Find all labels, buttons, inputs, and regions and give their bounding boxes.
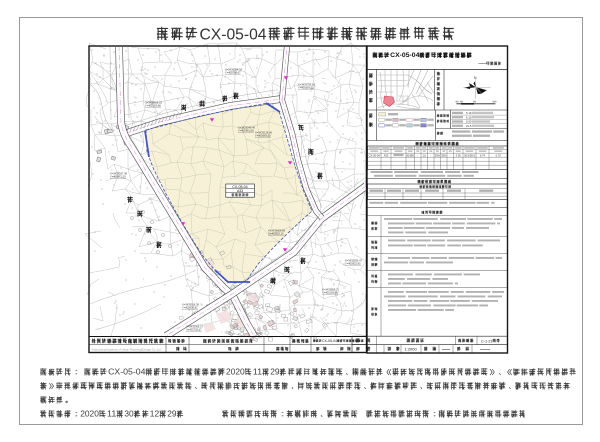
svg-text:A33: A33	[384, 153, 389, 157]
svg-text:CX-05-04: CX-05-04	[108, 367, 146, 377]
svg-text:-: -	[430, 154, 431, 157]
svg-text:-: -	[450, 154, 451, 157]
svg-text:2020: 2020	[226, 367, 245, 377]
svg-text:Y=405461.68: Y=405461.68	[238, 128, 254, 132]
svg-text:1:2000: 1:2000	[405, 347, 418, 352]
svg-text:Y=405669.59: Y=405669.59	[255, 133, 271, 137]
svg-text:11: 11	[107, 409, 117, 419]
svg-text:1.6: 1.6	[422, 153, 426, 157]
svg-text:61996: 61996	[407, 153, 415, 157]
svg-text:Y=405798.67: Y=405798.67	[225, 70, 241, 74]
svg-text:21.5: 21.5	[466, 124, 472, 128]
svg-text:6.74: 6.74	[480, 153, 486, 157]
svg-text:CX-05-04: CX-05-04	[390, 52, 420, 59]
svg-text:Y=405605.82: Y=405605.82	[182, 305, 198, 309]
svg-text:30%: 30%	[435, 153, 441, 157]
svg-text:Y=405159.88: Y=405159.88	[322, 290, 338, 294]
svg-text:35%: 35%	[441, 153, 447, 157]
svg-text:3.36: 3.36	[456, 153, 462, 157]
svg-text:CX-05-04: CX-05-04	[200, 27, 267, 44]
svg-text:Xuancheng Academy of Urban Pla: Xuancheng Academy of Urban Planning&Desi…	[92, 348, 162, 352]
svg-text:29: 29	[270, 367, 280, 377]
svg-text:Y=405193.66: Y=405193.66	[145, 103, 161, 107]
svg-text:11: 11	[253, 367, 263, 377]
svg-text:A33: A33	[237, 189, 243, 193]
svg-text:6.70: 6.70	[496, 153, 502, 157]
svg-text:Y=405137.50: Y=405137.50	[298, 85, 314, 89]
svg-text:29: 29	[167, 409, 177, 419]
svg-text:CX-05-04: CX-05-04	[322, 339, 337, 343]
svg-text:C-1-21: C-1-21	[481, 339, 493, 343]
svg-text:2020: 2020	[80, 409, 99, 419]
svg-text:-: -	[417, 154, 418, 157]
svg-text:30: 30	[124, 409, 134, 419]
svg-text:CX-05-04: CX-05-04	[369, 153, 381, 157]
svg-text:Y=405520.20: Y=405520.20	[268, 231, 284, 235]
svg-text:Y=405971.30: Y=405971.30	[110, 174, 126, 178]
svg-text:Y=405832.85: Y=405832.85	[345, 261, 361, 265]
svg-text:12: 12	[150, 409, 160, 419]
svg-text:Y=405728.17: Y=405728.17	[186, 327, 202, 331]
svg-text:36.5/38.6: 36.5/38.6	[464, 153, 475, 157]
